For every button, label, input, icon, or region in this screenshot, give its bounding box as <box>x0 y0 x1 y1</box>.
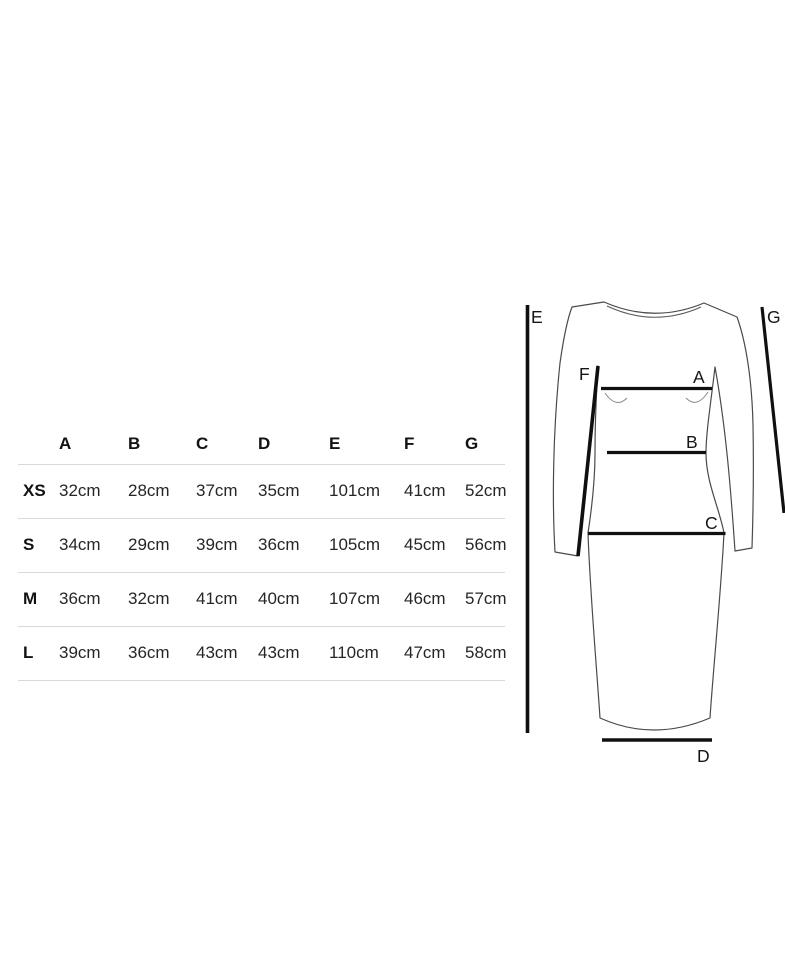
table-row-s: S 34cm 29cm 39cm 36cm 105cm 45cm 56cm <box>18 518 505 572</box>
measurement-value: 36cm <box>128 626 196 680</box>
measurement-value: 40cm <box>258 572 329 626</box>
measurement-value: 58cm <box>465 626 505 680</box>
column-header-g: G <box>465 425 505 464</box>
size-chart-table: A B C D E F G XS 32cm 28cm 37cm 35cm 101… <box>18 425 505 681</box>
column-header-d: D <box>258 425 329 464</box>
measurement-value: 36cm <box>59 572 128 626</box>
measurement-value: 39cm <box>196 518 258 572</box>
measurement-value: 56cm <box>465 518 505 572</box>
measurement-value: 107cm <box>329 572 404 626</box>
table-row-m: M 36cm 32cm 41cm 40cm 107cm 46cm 57cm <box>18 572 505 626</box>
column-header-e: E <box>329 425 404 464</box>
hip-label: C <box>705 513 718 533</box>
measurement-value: 45cm <box>404 518 465 572</box>
measurement-value: 39cm <box>59 626 128 680</box>
size-label: S <box>18 518 59 572</box>
size-guide-page: A B C D E F G XS 32cm 28cm 37cm 35cm 101… <box>0 0 785 971</box>
measurement-value: 47cm <box>404 626 465 680</box>
sleeve-inner-label: F <box>579 364 590 384</box>
size-label: XS <box>18 464 59 518</box>
bust-label: A <box>693 367 705 387</box>
sleeve-outer-label: G <box>767 307 781 327</box>
column-header-c: C <box>196 425 258 464</box>
measurement-value: 36cm <box>258 518 329 572</box>
measurements-table: A B C D E F G XS 32cm 28cm 37cm 35cm 101… <box>18 425 505 681</box>
size-label: M <box>18 572 59 626</box>
measurement-value: 110cm <box>329 626 404 680</box>
measurement-value: 35cm <box>258 464 329 518</box>
column-header-f: F <box>404 425 465 464</box>
size-label: L <box>18 626 59 680</box>
column-header-b: B <box>128 425 196 464</box>
measurement-value: 41cm <box>196 572 258 626</box>
measurement-value: 105cm <box>329 518 404 572</box>
column-header-a: A <box>59 425 128 464</box>
length-label: E <box>531 307 543 327</box>
sleeve-outer-measure-line <box>762 307 784 513</box>
table-row-l: L 39cm 36cm 43cm 43cm 110cm 47cm 58cm <box>18 626 505 680</box>
measurement-value: 32cm <box>59 464 128 518</box>
table-row-xs: XS 32cm 28cm 37cm 35cm 101cm 41cm 52cm <box>18 464 505 518</box>
measurement-value: 46cm <box>404 572 465 626</box>
waist-label: B <box>686 432 698 452</box>
measurement-value: 43cm <box>258 626 329 680</box>
measurement-value: 32cm <box>128 572 196 626</box>
measurement-value: 43cm <box>196 626 258 680</box>
measurement-value: 28cm <box>128 464 196 518</box>
measurement-value: 29cm <box>128 518 196 572</box>
measurement-value: 41cm <box>404 464 465 518</box>
measurement-value: 52cm <box>465 464 505 518</box>
corner-cell <box>18 425 59 464</box>
table-header-row: A B C D E F G <box>18 425 505 464</box>
measurement-value: 57cm <box>465 572 505 626</box>
measurement-value: 101cm <box>329 464 404 518</box>
measurement-value: 37cm <box>196 464 258 518</box>
measurement-value: 34cm <box>59 518 128 572</box>
dress-measurement-diagram: A B C D E F G <box>520 280 785 780</box>
hem-label: D <box>697 746 710 766</box>
